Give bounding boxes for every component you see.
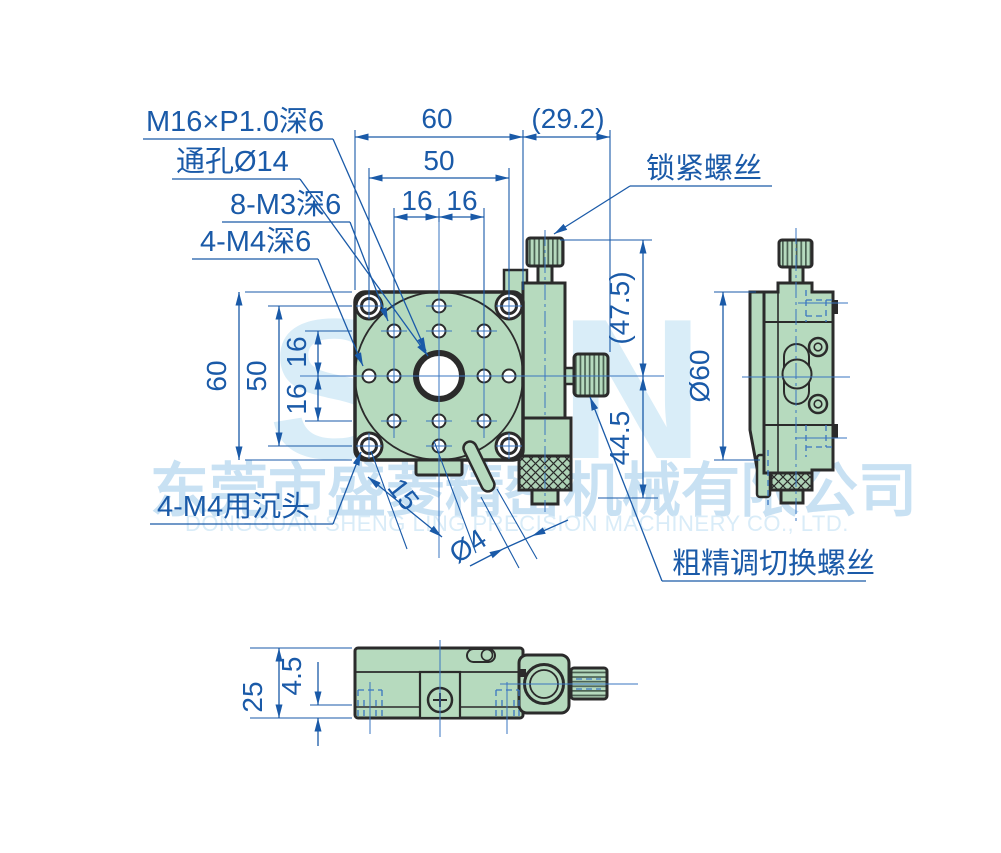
dim-knob-height: (47.5) <box>604 271 635 344</box>
side-end-cap <box>781 490 803 503</box>
dim-side-dia: Ø60 <box>684 350 715 403</box>
rotation-stage-drawing: SLN 东莞市盛菱精密机械有限公司 DONGGUAN SHENG LING PR… <box>0 0 1001 853</box>
dim-left-height: 60 <box>201 360 232 391</box>
dim-offset: (29.2) <box>531 103 604 134</box>
bottom-view <box>355 648 607 718</box>
side-tab-upper <box>833 300 838 314</box>
dim-vpitch-a: 16 <box>281 336 312 367</box>
technical-drawing-page: SLN 东莞市盛菱精密机械有限公司 DONGGUAN SHENG LING PR… <box>0 0 1001 853</box>
callout-coarse-fine: 粗精调切换螺丝 <box>672 547 875 580</box>
dim-top-inner: 50 <box>423 145 454 176</box>
dim-pitch-b: 16 <box>446 185 477 216</box>
dim-bottom-height: 25 <box>237 681 268 712</box>
callout-through-hole: 通孔Ø14 <box>176 146 289 178</box>
callout-m4-holes: 4-M4深6 <box>200 226 311 258</box>
side-slot-circle <box>783 360 812 389</box>
dim-pitch-a: 16 <box>401 185 432 216</box>
micrometer-body <box>523 283 565 420</box>
callout-m4-counterbore: 4-M4用沉头 <box>157 490 310 523</box>
coarse-fine-knob <box>574 354 608 396</box>
dim-top-width: 60 <box>421 103 452 134</box>
callout-lock-screw: 锁紧螺丝 <box>646 152 762 185</box>
side-tab-lower <box>833 424 838 438</box>
callout-center-thread: M16×P1.0深6 <box>146 106 324 138</box>
dim-body-height: 44.5 <box>604 411 635 466</box>
dim-left-inner: 50 <box>241 360 272 391</box>
callout-m3-holes: 8-M3深6 <box>230 189 341 221</box>
side-knurl-band <box>771 473 812 490</box>
side-view <box>750 240 838 503</box>
dim-bottom-step: 4.5 <box>276 657 307 696</box>
side-left-flange <box>750 292 764 468</box>
dim-vpitch-b: 16 <box>281 383 312 414</box>
